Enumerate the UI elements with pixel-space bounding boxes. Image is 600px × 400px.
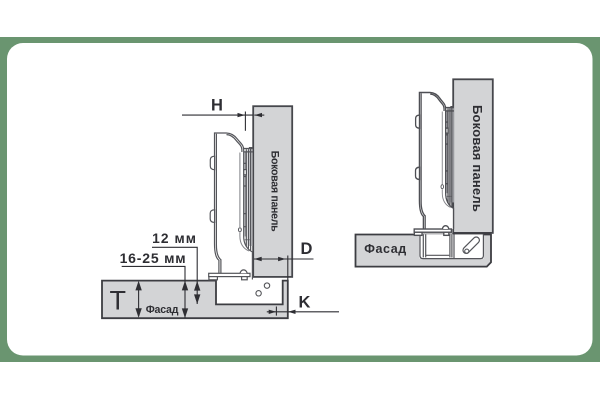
svg-text:D: D — [301, 240, 313, 258]
svg-text:K: K — [299, 294, 311, 312]
svg-text:T: T — [110, 285, 127, 315]
svg-text:Боковая панель: Боковая панель — [268, 151, 280, 233]
svg-text:16-25 мм: 16-25 мм — [120, 250, 187, 266]
svg-text:Фасад: Фасад — [364, 242, 407, 256]
svg-text:H: H — [211, 97, 223, 115]
svg-text:Фасад: Фасад — [146, 304, 179, 316]
svg-text:12 мм: 12 мм — [152, 231, 197, 246]
svg-text:Боковая панель: Боковая панель — [470, 105, 485, 212]
